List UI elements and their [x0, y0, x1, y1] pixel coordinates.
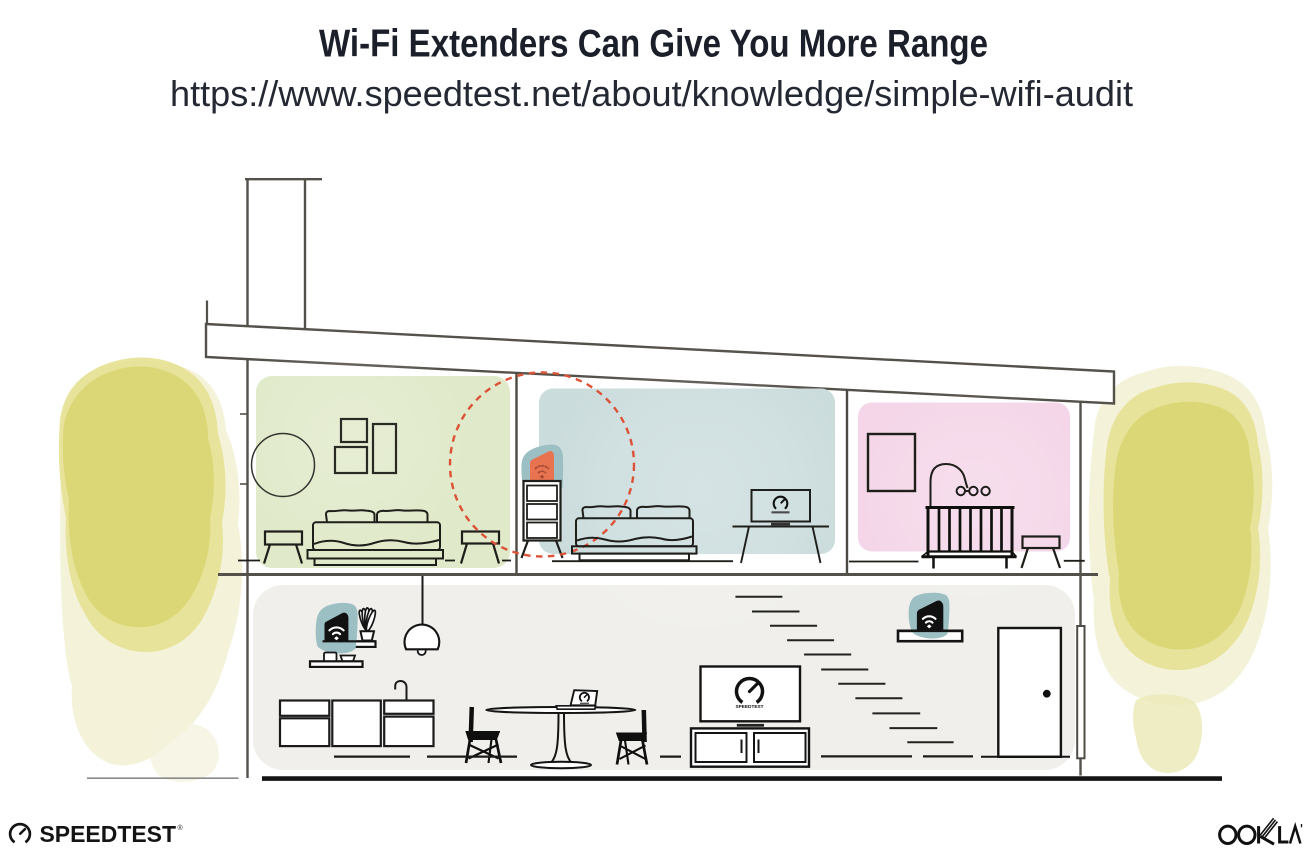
svg-text:®: ®	[178, 824, 184, 832]
svg-text:SPEEDTEST: SPEEDTEST	[40, 821, 177, 847]
svg-text:Wi-Fi Extenders Can Give You M: Wi-Fi Extenders Can Give You More Range	[319, 23, 988, 66]
svg-text:https://www.speedtest.net/abou: https://www.speedtest.net/about/knowledg…	[170, 73, 1133, 114]
svg-text:SPEEDTEST: SPEEDTEST	[736, 704, 764, 709]
